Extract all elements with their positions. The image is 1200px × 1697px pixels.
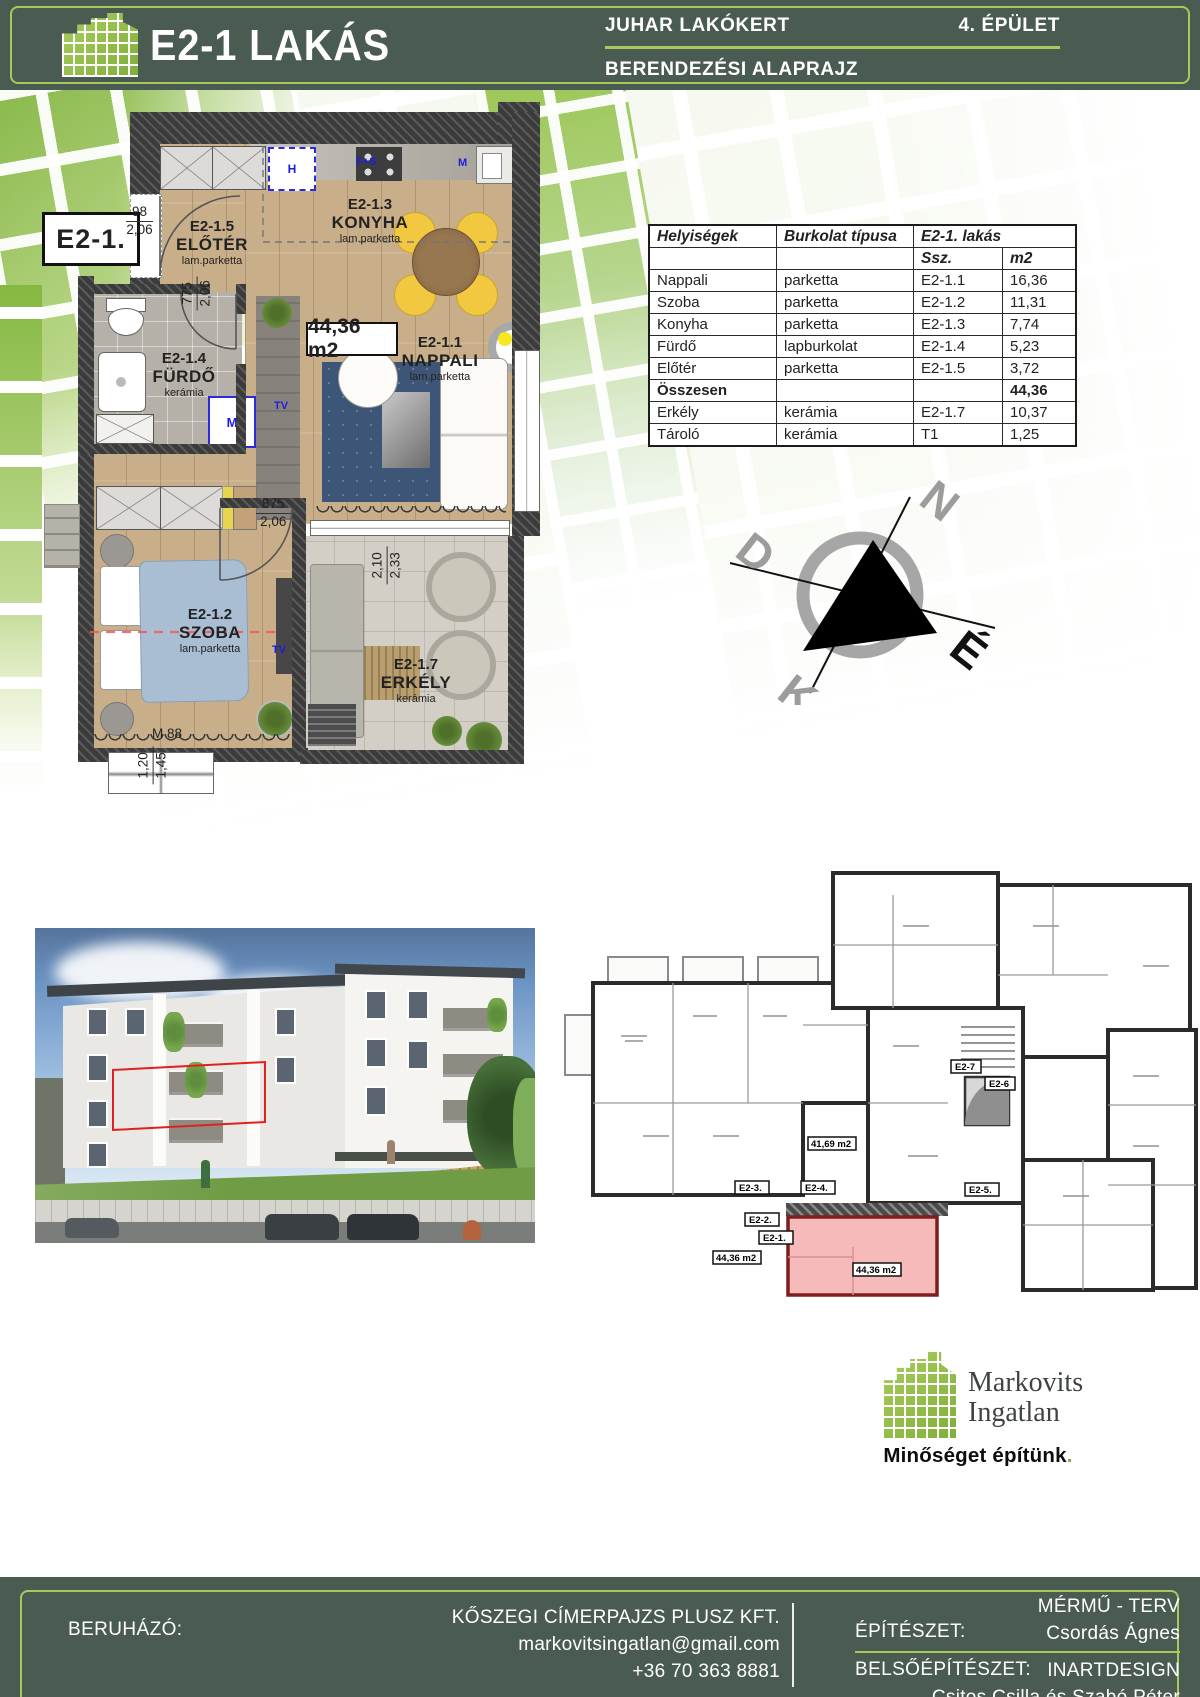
wall xyxy=(292,504,306,758)
shelf-szoba xyxy=(233,486,257,530)
overview-area-mid: 41,69 m2 xyxy=(811,1139,851,1150)
investor-name: KŐSZEGI CÍMERPAJZS PLUSZ KFT. xyxy=(380,1604,780,1631)
logo-pixel-building xyxy=(882,1352,956,1440)
window xyxy=(87,1142,108,1168)
car xyxy=(65,1218,119,1238)
investor-label: BERUHÁZÓ: xyxy=(68,1619,182,1641)
nightstand xyxy=(100,702,134,736)
kitchen-hood-box: H xyxy=(268,147,316,191)
compass-letter-n: N xyxy=(911,470,969,531)
balcony-plant xyxy=(432,716,462,746)
room-label-szoba: E2-1.2 SZOBA lam.parketta xyxy=(152,606,268,655)
overview-badge-e2-3: E2-3. xyxy=(739,1183,762,1194)
compass-rose: N D K É xyxy=(705,455,1005,705)
curtain-bedroom xyxy=(94,734,290,743)
sink-label: M xyxy=(458,157,467,169)
window xyxy=(275,1056,296,1084)
window xyxy=(125,1008,146,1036)
window xyxy=(87,1054,108,1082)
dim-entry: 98 2,06 xyxy=(126,204,153,239)
header-right: JUHAR LAKÓKERT 4. ÉPÜLET BERENDEZÉSI ALA… xyxy=(605,15,1060,81)
dim-bath-door: 775 2,06 xyxy=(180,258,215,328)
table-header-finish: Burkolat típusa xyxy=(777,225,914,248)
table-row-total: Összesen 44,36 xyxy=(649,380,1076,402)
logo-name-1: Markovits xyxy=(968,1368,1083,1398)
page-title: E2-1 LAKÁS xyxy=(150,21,390,71)
tv-cabinet xyxy=(276,578,292,674)
building-photo xyxy=(35,928,535,1243)
wall xyxy=(508,536,524,764)
building-number: 4. ÉPÜLET xyxy=(959,15,1060,37)
page: E2-1 LAKÁS JUHAR LAKÓKERT 4. ÉPÜLET BERE… xyxy=(0,0,1200,1697)
overview-badge-e2-6: E2-6 xyxy=(989,1079,1009,1090)
bedroom-plant xyxy=(256,700,294,738)
wardrobe-szoba-2 xyxy=(160,486,224,530)
stove-label: F+S xyxy=(356,156,376,168)
wall xyxy=(130,112,512,144)
table-row: Konyhaparketta E2-1.37,74 xyxy=(649,314,1076,336)
table-row: Nappaliparketta E2-1.116,36 xyxy=(649,270,1076,292)
overview-badge-e2-5: E2-5. xyxy=(969,1185,992,1196)
person xyxy=(463,1220,481,1240)
compass-letter-k: K xyxy=(769,664,827,705)
window xyxy=(87,1100,108,1128)
neighbor-building xyxy=(35,1078,65,1188)
lamp-light xyxy=(498,332,512,346)
floor-plan: H F+S M M xyxy=(60,100,540,800)
car xyxy=(265,1214,339,1240)
footer-green-line xyxy=(855,1651,1180,1653)
unit-highlight-outline xyxy=(112,1061,266,1131)
balcony-door-window xyxy=(310,520,510,536)
car xyxy=(347,1214,419,1240)
balcony-plants xyxy=(163,1012,185,1052)
total-area-label: 44,36 m2 xyxy=(306,322,398,356)
drawing-type: BERENDEZÉSI ALAPRAJZ xyxy=(605,59,1060,81)
overview-area-left: 44,36 m2 xyxy=(716,1253,756,1264)
window xyxy=(365,1086,387,1116)
wardrobe-eloter-1 xyxy=(160,146,214,190)
project-name: JUHAR LAKÓKERT xyxy=(605,15,790,37)
footer-bar: BERUHÁZÓ: KŐSZEGI CÍMERPAJZS PLUSZ KFT. … xyxy=(0,1577,1200,1697)
tv-label-bedroom: TV xyxy=(272,644,286,656)
header-divider xyxy=(605,46,1060,49)
window-right xyxy=(514,350,540,512)
curtain-living xyxy=(316,506,506,515)
wardrobe-eloter-2 xyxy=(212,146,266,190)
overview-unit-area: 44,36 m2 xyxy=(856,1265,896,1276)
footer-divider xyxy=(792,1603,794,1687)
room-label-erkely: E2-1.7 ERKÉLY kerámia xyxy=(360,656,472,705)
table-row: Szobaparketta E2-1.211,31 xyxy=(649,292,1076,314)
dim-balcony-door: 2,10 2,33 xyxy=(370,530,405,600)
table-row: Erkélykerámia E2-1.710,37 xyxy=(649,402,1076,424)
wall xyxy=(78,276,94,762)
table-row: Tárolókerámia T11,25 xyxy=(649,424,1076,447)
person xyxy=(201,1160,210,1188)
background-strip-left xyxy=(0,285,42,825)
table-subheader-code: Ssz. xyxy=(914,248,1003,270)
header-logo xyxy=(62,13,138,77)
coffee-table xyxy=(382,392,430,468)
architect-name: Csordás Ágnes xyxy=(880,1620,1180,1647)
ac-unit xyxy=(308,704,356,746)
compass-letter-e: É xyxy=(941,620,997,680)
wall xyxy=(130,112,160,194)
overview-badge-e2-1: E2-1. xyxy=(763,1233,786,1244)
pillow xyxy=(100,566,144,626)
logo-name-2: Ingatlan xyxy=(968,1398,1083,1428)
investor-block: KŐSZEGI CÍMERPAJZS PLUSZ KFT. markovitsi… xyxy=(380,1604,780,1685)
room-label-nappali: E2-1.1 NAPPALI lam.parketta xyxy=(390,334,490,383)
balcony-chair xyxy=(426,552,496,622)
building-overview-plan: E2-1. E2-2. E2-3. E2-4. E2-5. E2-6 E2-7 … xyxy=(553,865,1198,1297)
window xyxy=(407,990,429,1020)
room-label-furdo: E2-1.4 FÜRDŐ kerámia xyxy=(126,350,242,399)
overview-badge-e2-2: E2-2. xyxy=(749,1215,772,1226)
table-header-rooms: Helyiségek xyxy=(649,225,777,248)
wardrobe-szoba-1 xyxy=(96,486,162,530)
tree-light xyxy=(513,1078,535,1178)
investor-phone: +36 70 363 8881 xyxy=(380,1658,780,1685)
room-label-konyha: E2-1.3 KONYHA lam.parketta xyxy=(310,196,430,245)
interior-designers: Csitos Csilla és Szabó Péter xyxy=(855,1684,1180,1697)
dim-bedroom-door: 875 2,06 xyxy=(256,496,291,531)
investor-email: markovitsingatlan@gmail.com xyxy=(380,1631,780,1658)
table-header-unit: E2-1. lakás xyxy=(914,225,1077,248)
table-subheader-area: m2 xyxy=(1003,248,1077,270)
person xyxy=(387,1140,395,1164)
window xyxy=(365,1038,387,1068)
corridor-plant xyxy=(262,298,292,328)
wall xyxy=(300,750,524,764)
wall xyxy=(236,284,246,314)
sink-basin xyxy=(482,153,502,179)
wall xyxy=(78,444,246,454)
balcony-plants xyxy=(487,998,507,1032)
table-row: Előtérparketta E2-1.53,72 xyxy=(649,358,1076,380)
window xyxy=(275,1008,296,1036)
architecture-company: MÉRMŰ - TERV xyxy=(880,1593,1180,1620)
interior-block: INARTDESIGN Csitos Csilla és Szabó Péter xyxy=(855,1657,1180,1697)
pillow xyxy=(100,630,144,690)
building-pixel-icon xyxy=(62,13,138,77)
overview-badge-e2-4: E2-4. xyxy=(805,1183,828,1194)
logo-wordmark: Markovits Ingatlan xyxy=(968,1368,1083,1428)
logo-slogan: Minőséget építünk. xyxy=(868,1444,1088,1468)
hood-label: H xyxy=(288,162,297,176)
window xyxy=(407,1040,429,1070)
tv-label-hall: TV xyxy=(274,400,288,412)
window xyxy=(365,990,387,1020)
washing-machine: M xyxy=(208,396,256,448)
room-table: Helyiségek Burkolat típusa E2-1. lakás S… xyxy=(648,224,1077,447)
overview-badge-e2-7: E2-7 xyxy=(955,1062,975,1073)
architecture-block: MÉRMŰ - TERV Csordás Ágnes xyxy=(880,1593,1180,1647)
sink-drain xyxy=(116,377,126,387)
slogan-dot: . xyxy=(1067,1444,1073,1467)
window xyxy=(87,1008,108,1036)
interior-company: INARTDESIGN xyxy=(855,1657,1180,1684)
header-bar: E2-1 LAKÁS JUHAR LAKÓKERT 4. ÉPÜLET BERE… xyxy=(0,0,1200,90)
shower xyxy=(96,414,154,444)
nightstand xyxy=(100,534,134,568)
exterior-stairs xyxy=(44,504,80,568)
table-row: Fürdőlapburkolat E2-1.45,23 xyxy=(649,336,1076,358)
window-mark: M 88 xyxy=(152,726,182,741)
